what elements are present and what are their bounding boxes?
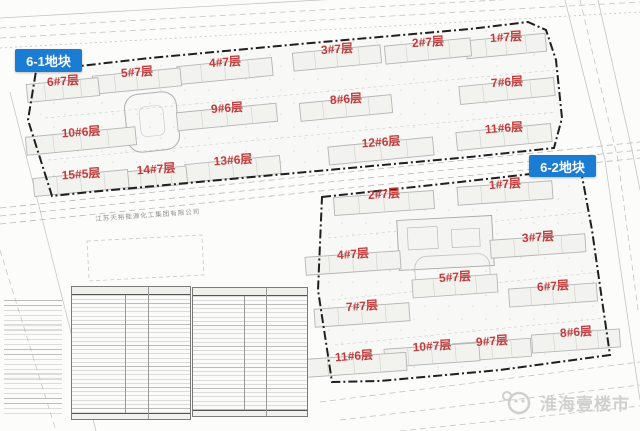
building-label: 15#5层 <box>61 167 100 182</box>
building-label: 11#6层 <box>335 349 374 364</box>
building-label: 1#7层 <box>490 30 523 44</box>
building-label: 11#6层 <box>485 121 524 136</box>
indicator-table-left-header <box>72 287 190 295</box>
building-label: 7#6层 <box>491 75 524 89</box>
building-label: 13#6层 <box>213 153 252 168</box>
building-label: 9#7层 <box>476 334 509 348</box>
building-label: 6#7层 <box>47 74 80 88</box>
building-label: 12#6层 <box>361 135 400 150</box>
plot-badge-6-1: 6-1地块 <box>15 49 82 72</box>
building-label: 6#7层 <box>537 279 570 293</box>
indicator-table-right <box>192 287 308 417</box>
building-label: 8#6层 <box>330 92 363 106</box>
building-label: 2#7层 <box>368 187 401 201</box>
building-label: 1#7层 <box>489 177 522 191</box>
building-label: 8#6层 <box>560 325 593 339</box>
indicator-table-right-footer <box>193 410 307 416</box>
building-label: 3#7层 <box>522 230 555 244</box>
building-label: 5#7层 <box>439 270 472 284</box>
indicator-table-left <box>71 286 191 420</box>
building-label: 2#7层 <box>412 35 445 49</box>
building-label: 10#6层 <box>61 125 100 140</box>
notes-block <box>4 296 62 414</box>
site-plan-page: 6-1地块 6-2地块 江苏天裕能源化工集团有限公司 淮海壹楼市 1#7层2#7… <box>0 0 640 431</box>
watermark-logo-icon <box>500 387 534 417</box>
building-label: 3#7层 <box>321 42 354 56</box>
watermark-text: 淮海壹楼市 <box>540 390 630 415</box>
indicator-table-right-header <box>193 288 307 296</box>
building-label: 4#7层 <box>209 55 242 69</box>
building-label: 9#6层 <box>211 101 244 115</box>
watermark: 淮海壹楼市 <box>500 387 630 417</box>
indicator-table-left-footer <box>72 413 190 419</box>
building-label: 5#7层 <box>121 65 154 79</box>
building-label: 14#7层 <box>136 162 175 177</box>
building-label: 7#7层 <box>346 299 379 313</box>
plot-badge-6-2: 6-2地块 <box>529 155 596 177</box>
building-label: 10#7层 <box>412 339 451 354</box>
building-label: 4#7层 <box>337 247 370 261</box>
